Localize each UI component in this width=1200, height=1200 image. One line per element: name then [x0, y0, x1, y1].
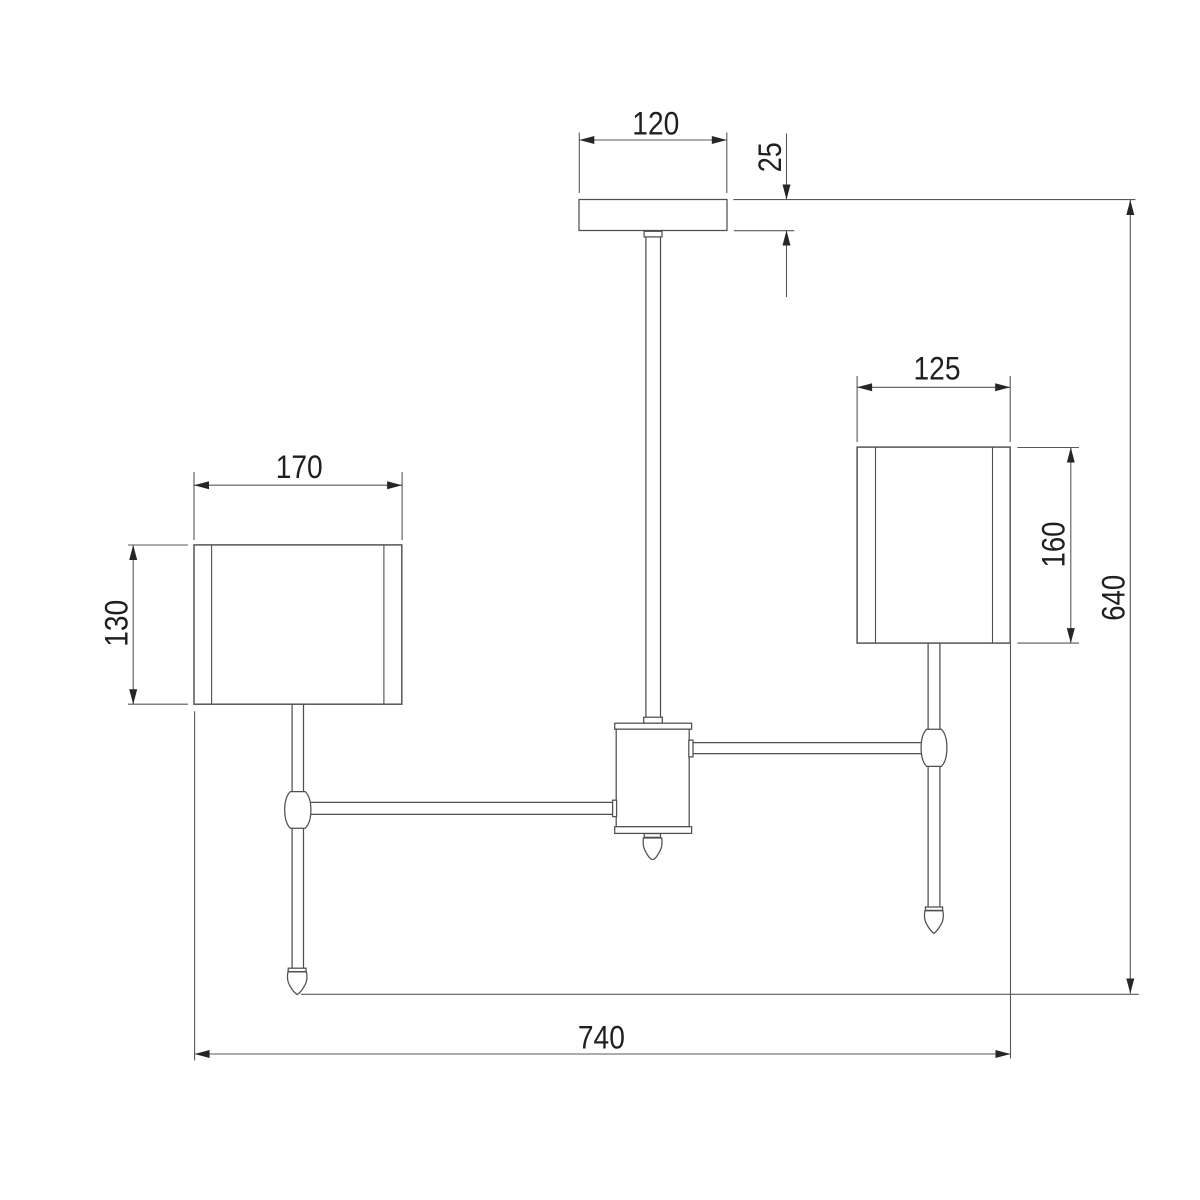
svg-text:170: 170	[276, 449, 323, 485]
svg-text:130: 130	[99, 600, 135, 647]
svg-text:640: 640	[1095, 575, 1131, 621]
svg-text:125: 125	[914, 350, 961, 386]
svg-text:740: 740	[578, 1019, 625, 1055]
svg-text:25: 25	[752, 142, 788, 172]
svg-text:120: 120	[632, 105, 679, 141]
svg-text:160: 160	[1036, 522, 1072, 568]
